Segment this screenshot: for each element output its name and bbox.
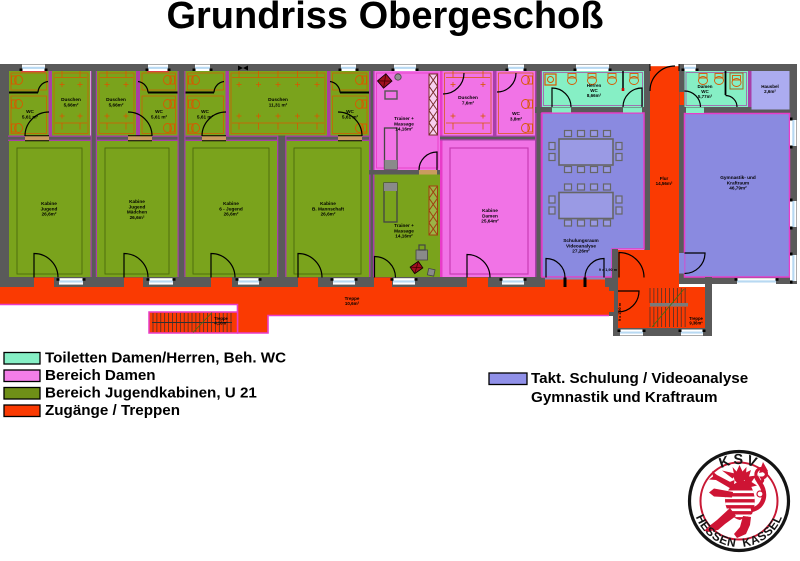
svg-text:Gymnastik und Kraftraum: Gymnastik und Kraftraum bbox=[531, 389, 718, 406]
svg-text:Bereich Damen: Bereich Damen bbox=[45, 367, 156, 384]
svg-text:Treppe10,6m²: Treppe10,6m² bbox=[345, 296, 360, 306]
svg-text:Trainer +Massage14,16m²: Trainer +Massage14,16m² bbox=[394, 223, 414, 239]
svg-text:Duschen5,66m²: Duschen5,66m² bbox=[61, 97, 81, 107]
svg-text:Toiletten Damen/Herren, Beh. W: Toiletten Damen/Herren, Beh. WC bbox=[45, 350, 286, 367]
svg-text:Duschen11,31 m²: Duschen11,31 m² bbox=[268, 97, 288, 107]
svg-text:Treppe4,16m²: Treppe4,16m² bbox=[214, 316, 228, 326]
svg-text:Bereich Jugendkabinen, U 21: Bereich Jugendkabinen, U 21 bbox=[45, 385, 257, 402]
svg-text:Takt. Schulung / Videoanalyse: Takt. Schulung / Videoanalyse bbox=[531, 370, 748, 387]
svg-text:9 x 1,90 m: 9 x 1,90 m bbox=[599, 268, 618, 272]
svg-text:Grundriss Obergeschoß: Grundriss Obergeschoß bbox=[166, 0, 603, 37]
svg-text:Treppe9,36m²: Treppe9,36m² bbox=[689, 316, 703, 326]
svg-text:KabineDamen25,64m²: KabineDamen25,64m² bbox=[481, 208, 499, 224]
svg-text:KabineJugend26,6m²: KabineJugend26,6m² bbox=[41, 201, 58, 217]
svg-text:Duschen5,66m²: Duschen5,66m² bbox=[106, 97, 126, 107]
svg-text:Zugänge / Treppen: Zugänge / Treppen bbox=[45, 402, 180, 419]
svg-text:9 x 1,90 m: 9 x 1,90 m bbox=[618, 302, 622, 321]
svg-text:Trainer +Massage14,16m²: Trainer +Massage14,16m² bbox=[394, 116, 414, 132]
svg-text:KabineJugendMädchen26,6m²: KabineJugendMädchen26,6m² bbox=[127, 199, 147, 220]
